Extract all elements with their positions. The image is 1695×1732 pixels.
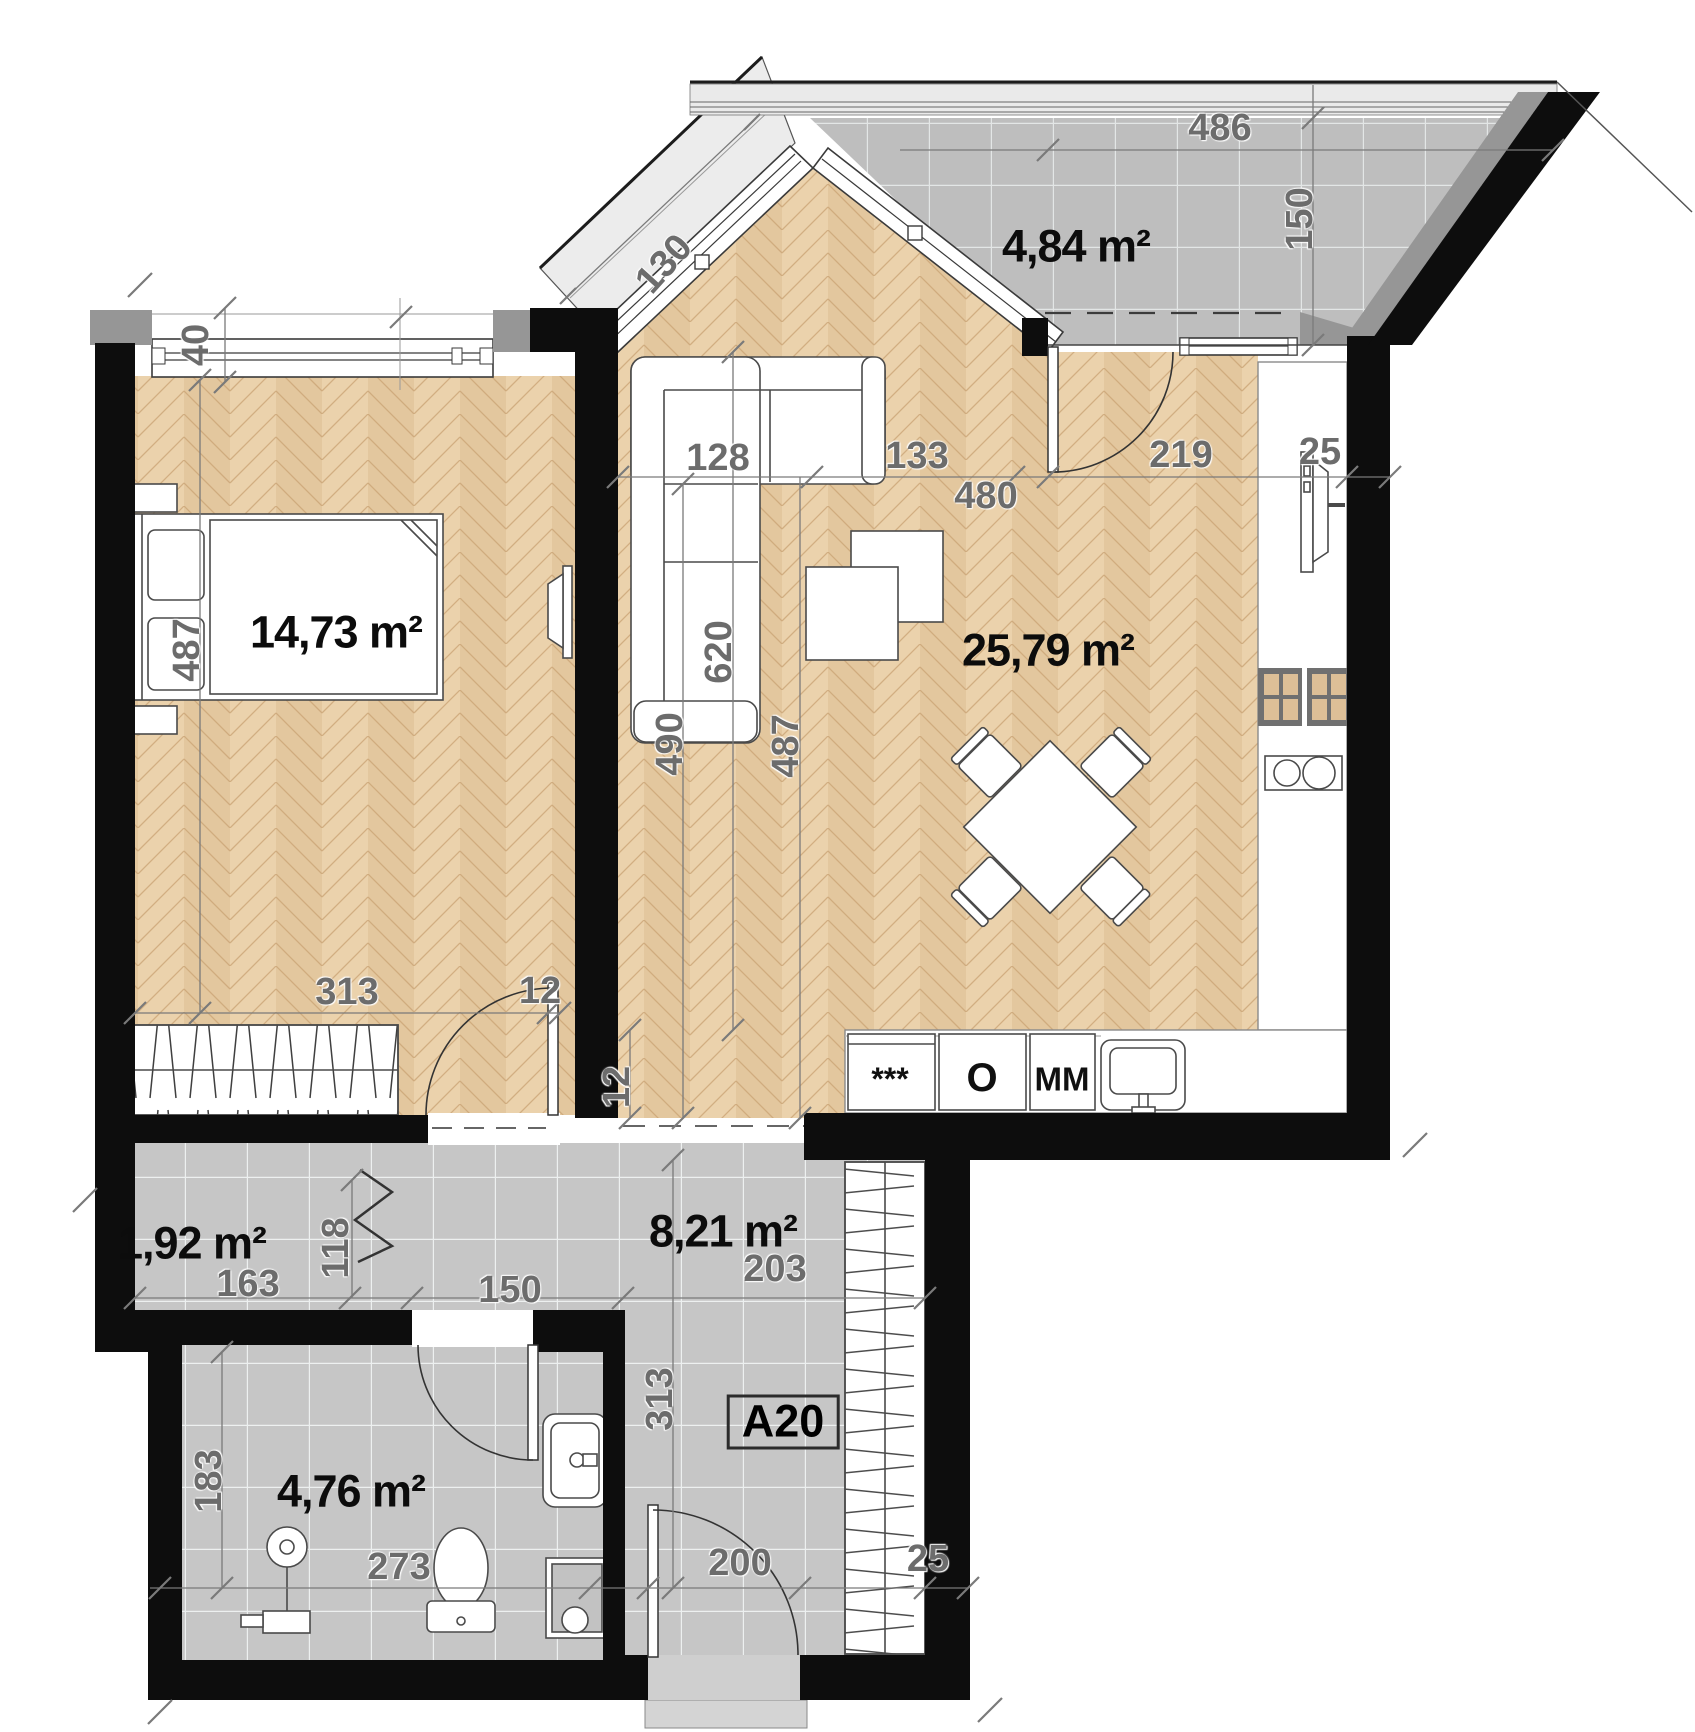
oven <box>939 1034 1026 1110</box>
bedroom-window <box>150 314 495 377</box>
balcony-railing <box>690 84 1557 115</box>
entrance-threshold <box>645 1700 807 1728</box>
kitchen-sink <box>1101 1040 1185 1113</box>
ventilation-shaft <box>1258 668 1348 726</box>
washing-machine <box>546 1558 608 1638</box>
washbasin <box>543 1414 607 1507</box>
pillow <box>148 530 204 600</box>
corridor-wardrobe <box>845 1162 925 1654</box>
balcony-window <box>1180 338 1297 355</box>
pillow <box>148 618 204 690</box>
cooktop <box>1265 756 1342 790</box>
mattress <box>210 520 437 694</box>
context-line <box>1557 82 1692 212</box>
nightstand <box>130 484 177 512</box>
coffee-table <box>806 567 898 660</box>
floor-plan-drawing <box>0 0 1695 1732</box>
bathroom-floor <box>182 1345 603 1660</box>
bedroom-floor <box>135 376 580 1115</box>
microwave <box>1030 1034 1095 1110</box>
bed <box>130 484 443 734</box>
hall-floor <box>135 1143 623 1318</box>
fridge <box>848 1034 935 1110</box>
nightstand <box>130 706 177 734</box>
floor-plan: A20 14,73 m²25,79 m²4,84 m²1,92 m²8,21 m… <box>0 0 1695 1732</box>
bedroom-wardrobe <box>128 1025 398 1115</box>
